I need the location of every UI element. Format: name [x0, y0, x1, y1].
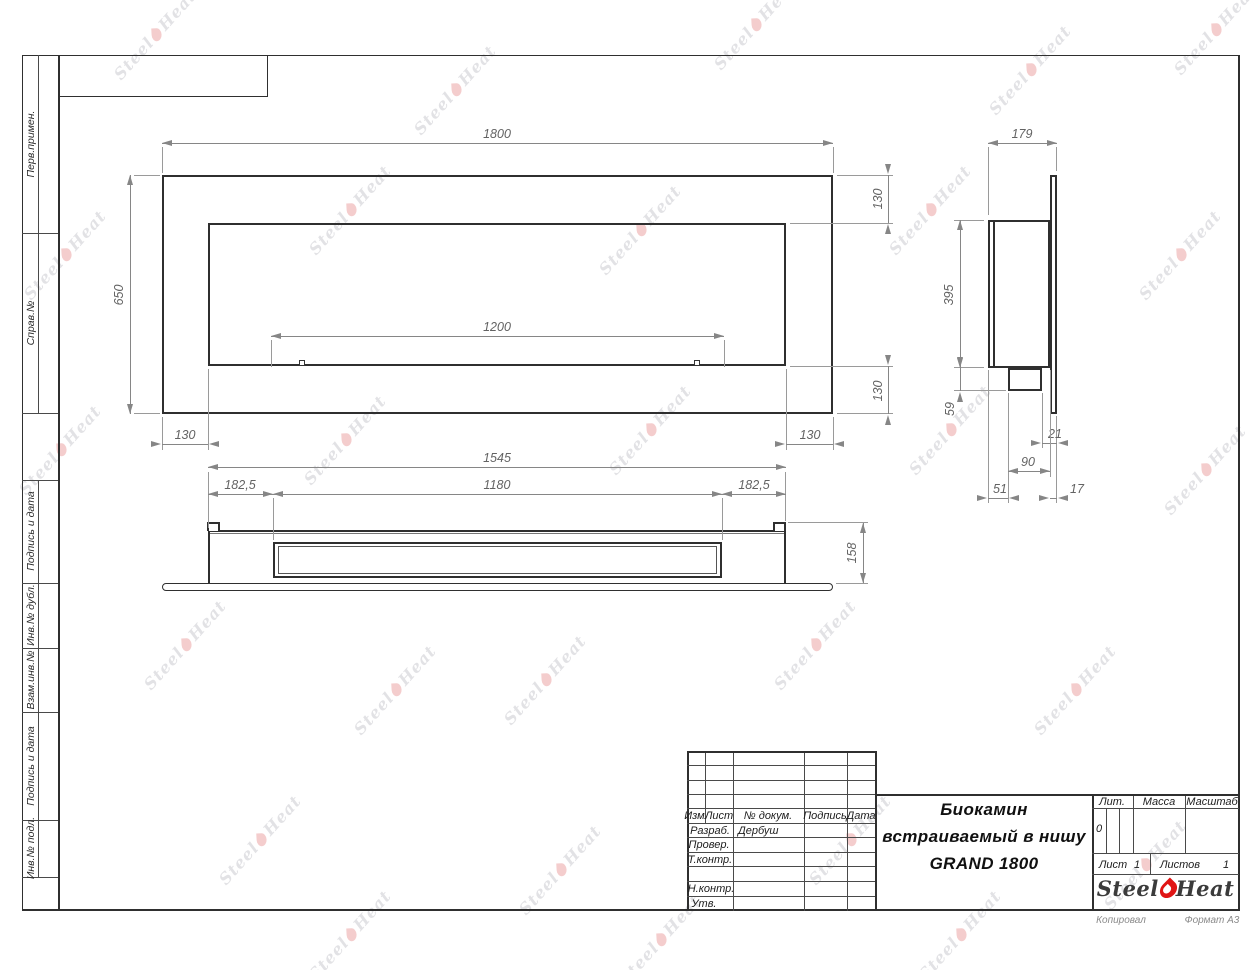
corner-box: [267, 55, 268, 97]
dim-front-opening: 1200: [483, 321, 511, 334]
drawing-sheet: SteelHeatSteelHeatSteelHeatSteelHeatStee…: [0, 0, 1255, 970]
flame-icon: [812, 638, 823, 652]
watermark: SteelHeat: [710, 0, 800, 74]
front-inner-opening: [208, 223, 786, 366]
tb-row-nkontr: Н.контр.: [688, 884, 735, 895]
tb-copied-label: Копировал: [1096, 916, 1146, 926]
tb-row-tkontr: Т.контр.: [688, 855, 732, 866]
flame-icon: [1202, 463, 1213, 477]
tb-mass-label: Масса: [1143, 797, 1176, 808]
dim-bottom-opening-width: 1180: [484, 479, 511, 492]
wall-plate: [162, 583, 833, 591]
side-flange: [1050, 175, 1057, 414]
flame-icon: [647, 423, 658, 437]
flame-icon: [342, 433, 353, 447]
tb-sheet-label: Лист: [1099, 860, 1127, 871]
flame-icon: [62, 248, 73, 262]
dim-front-margin-right-top: 130: [872, 189, 885, 210]
flame-icon: [847, 833, 858, 847]
dim-bottom-body-width: 1545: [483, 452, 511, 465]
strip-label-perv-primen: Перв.примен.: [26, 111, 37, 178]
strip-label-inv-podl: Инв.№ подл.: [26, 817, 37, 879]
dim-side-offset-51: 51: [993, 483, 1007, 496]
flame-icon: [257, 833, 268, 847]
watermark: SteelHeat: [140, 596, 230, 693]
tb-lit-label: Лит.: [1099, 797, 1125, 808]
watermark: SteelHeat: [215, 791, 305, 888]
doc-title-line-2: встраиваемый в нишу: [882, 828, 1086, 845]
dim-front-margin-bottom-left: 130: [175, 429, 196, 442]
strip-label-inv-dubl: Инв.№ дубл.: [26, 584, 37, 646]
tb-row-prover: Провер.: [689, 840, 730, 851]
watermark: SteelHeat: [770, 596, 860, 693]
side-body: [988, 220, 1050, 368]
strip-label-vzam-inv: Взам.инв.№: [26, 650, 37, 709]
flame-icon: [347, 928, 358, 942]
mount-clip-right: [773, 522, 786, 531]
flame-icon: [452, 83, 463, 97]
tb-developer-name: Дербуш: [738, 826, 779, 837]
dim-front-height: 650: [113, 285, 126, 306]
logo-heat-text: Heat: [1176, 876, 1235, 901]
flame-icon: [1072, 683, 1083, 697]
flame-icon: [392, 683, 403, 697]
flame-icon: [542, 673, 553, 687]
flame-icon: [927, 203, 938, 217]
dim-side-depth: 179: [1012, 128, 1033, 141]
watermark: SteelHeat: [305, 886, 395, 970]
watermark: SteelHeat: [410, 41, 500, 138]
tb-col-podpis: Подпись: [803, 811, 847, 822]
dim-front-width: 1800: [483, 128, 511, 141]
dim-bottom-margin-left: 182,5: [224, 479, 255, 492]
watermark: SteelHeat: [1170, 0, 1255, 79]
tb-col-docnum: № докум.: [744, 811, 792, 822]
flame-icon: [557, 863, 568, 877]
strip-label-sprav-no: Справ.№: [26, 301, 37, 346]
steelheat-logo: SteelHeat: [1092, 876, 1239, 909]
tb-sheets-label: Листов: [1160, 860, 1200, 871]
burner-pin-left: [299, 360, 305, 366]
doc-title-line-3: GRAND 1800: [930, 855, 1039, 872]
tb-row-utv: Утв.: [692, 899, 717, 910]
dim-front-margin-right-bottom: 130: [872, 381, 885, 402]
dim-side-tray-height: 59: [944, 402, 957, 416]
flame-icon: [657, 933, 668, 947]
watermark: SteelHeat: [985, 21, 1075, 118]
dim-bottom-height: 158: [846, 543, 859, 564]
tb-sheet-number: 1: [1134, 860, 1140, 871]
tb-scale-label: Масштаб: [1186, 797, 1237, 808]
bottom-opening-inner: [278, 546, 717, 574]
tb-lit-value: 0: [1096, 824, 1102, 835]
watermark: SteelHeat: [1135, 206, 1225, 303]
watermark: SteelHeat: [915, 886, 1005, 970]
dim-side-body-height: 395: [943, 285, 956, 306]
flame-icon: [752, 18, 763, 32]
flame-icon: [957, 928, 968, 942]
side-tray: [1008, 368, 1042, 391]
flame-icon: [1027, 63, 1038, 77]
flame-icon: [1212, 23, 1223, 37]
flame-icon: [182, 638, 193, 652]
watermark: SteelHeat: [1160, 421, 1250, 518]
dim-front-margin-bottom-right: 130: [800, 429, 821, 442]
watermark: SteelHeat: [885, 161, 975, 258]
flame-icon: [947, 423, 958, 437]
tb-format-label: Формат А3: [1185, 916, 1240, 926]
dim-bottom-margin-right: 182,5: [738, 479, 769, 492]
strip-label-podpis-data-1: Подпись и дата: [26, 491, 37, 570]
watermark: SteelHeat: [500, 631, 590, 728]
watermark: SteelHeat: [1030, 641, 1120, 738]
strip-label-podpis-data-2: Подпись и дата: [26, 726, 37, 805]
tb-col-data: Дата: [846, 811, 875, 822]
watermark: SteelHeat: [110, 0, 200, 84]
tb-sheets-total: 1: [1223, 860, 1229, 871]
doc-title-line-1: Биокамин: [940, 801, 1028, 818]
dim-side-tray-width: 90: [1021, 456, 1035, 469]
burner-pin-right: [694, 360, 700, 366]
flame-icon: [1177, 248, 1188, 262]
watermark: SteelHeat: [515, 821, 605, 918]
watermark: SteelHeat: [350, 641, 440, 738]
tb-col-list: Лист: [705, 811, 733, 822]
watermark: SteelHeat: [15, 401, 105, 498]
flame-icon: [152, 28, 163, 42]
watermark: SteelHeat: [20, 206, 110, 303]
logo-steel-text: Steel: [1097, 876, 1159, 901]
watermark: SteelHeat: [905, 381, 995, 478]
dim-side-offset-17: 17: [1070, 483, 1084, 496]
tb-row-razrab: Разраб.: [690, 826, 730, 837]
